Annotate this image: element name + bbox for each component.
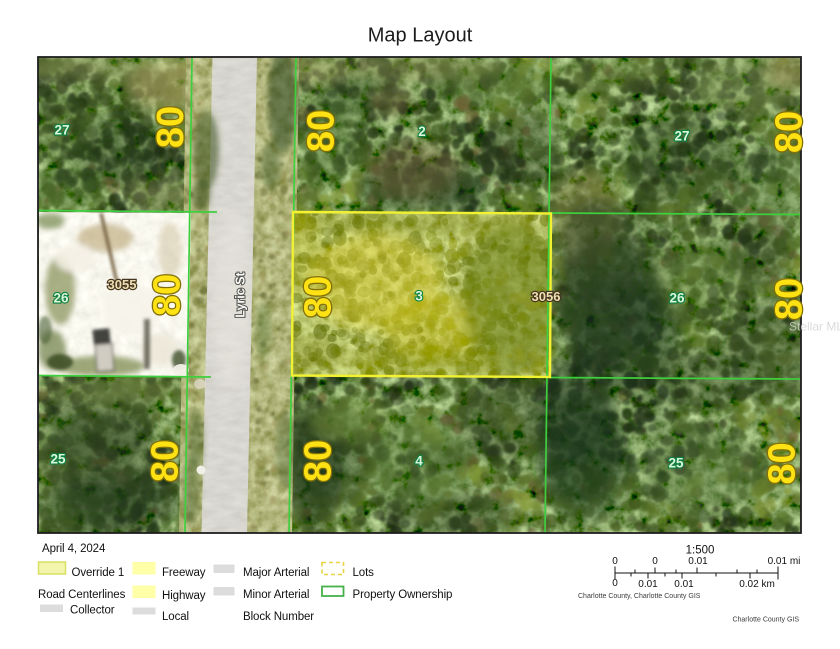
svg-text:Map Layout: Map Layout [368, 25, 473, 47]
